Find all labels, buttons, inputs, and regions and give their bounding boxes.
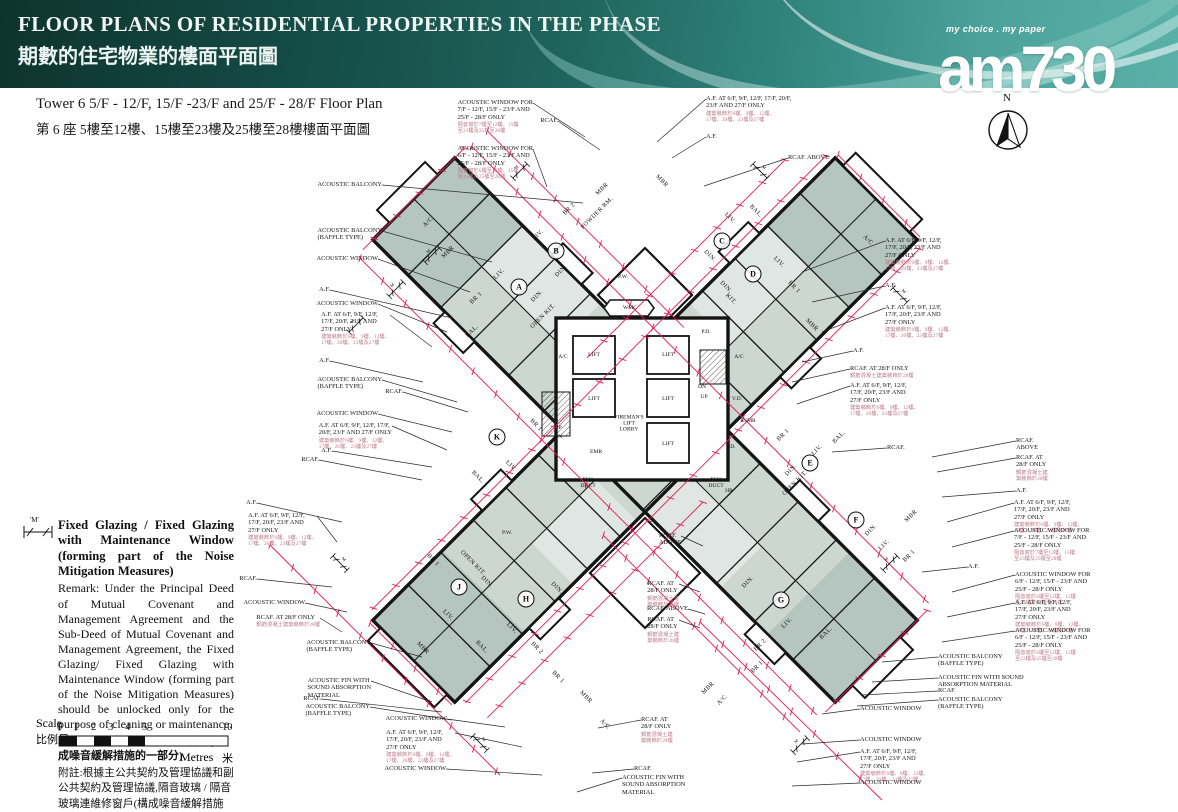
scale-tick-number: 3 <box>108 722 113 733</box>
scale-tick-number: 4 <box>125 722 130 733</box>
scale-tick-number: 10 <box>222 722 233 733</box>
scale-tick-number: 0 <box>57 722 62 733</box>
am730-logo: am730 <box>938 32 1112 106</box>
scale-tick-number: 2 <box>91 722 96 733</box>
scale-bar <box>0 0 1178 812</box>
page: FLOOR PLANS OF RESIDENTIAL PROPERTIES IN… <box>0 0 1178 812</box>
scale-tick-number: 5 <box>142 722 147 733</box>
page-title-zh: 期數的住宅物業的樓面平面圖 <box>18 40 278 69</box>
scale-tick-number: 1 <box>74 722 79 733</box>
scale-unit-zh: 米 <box>222 750 233 766</box>
page-title: FLOOR PLANS OF RESIDENTIAL PROPERTIES IN… <box>18 12 661 37</box>
scale-unit: Metres <box>180 750 213 765</box>
